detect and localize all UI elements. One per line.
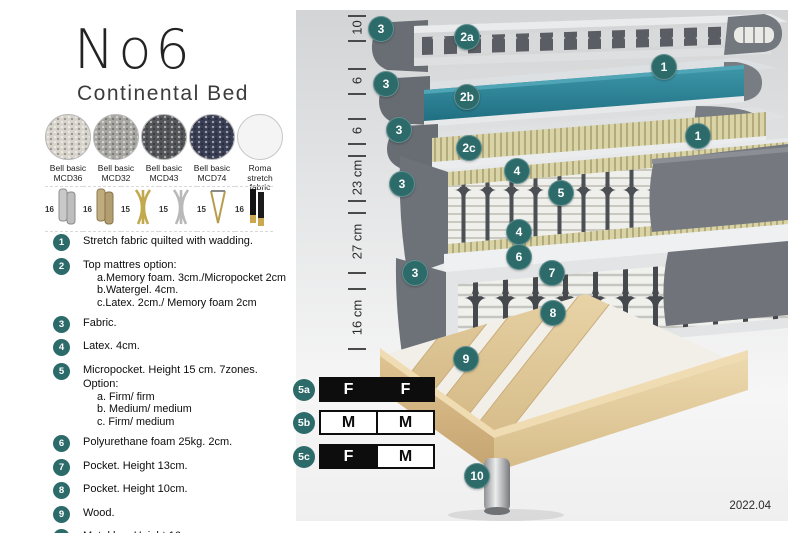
legend-text: Top mattres option:a.Memory foam. 3cm./M…	[83, 258, 286, 310]
leg-height-label: 16	[83, 205, 92, 214]
diagram-badge-2b: 2b	[454, 84, 480, 110]
fabric-swatch: Romastretch fabric	[237, 114, 283, 193]
diagram-badge-10: 10	[464, 463, 490, 489]
firmness-cell: M	[376, 412, 433, 433]
twist-gold-icon	[131, 187, 155, 232]
fabric-swatch-label: Bell basicMCD32	[93, 164, 139, 183]
legend-number-badge: 8	[53, 482, 70, 499]
legend-number-badge: 2	[53, 258, 70, 275]
legend-text-main: Pocket. Height 10cm.	[83, 482, 188, 496]
diagram-badge-1: 1	[651, 54, 677, 80]
fabric-swatch: Bell basicMCD32	[93, 114, 139, 193]
legend-number-badge: 5	[53, 363, 70, 380]
leg-options: 161615151516	[45, 186, 283, 232]
fabric-code: MCD74	[189, 174, 235, 184]
diagram-badge-3: 3	[389, 171, 415, 197]
dimension-value: 23 cm	[350, 146, 365, 208]
legend-text: Polyurethane foam 25kg. 2cm.	[83, 435, 232, 452]
firmness-row-5b: 5bMM	[293, 410, 435, 435]
legend-number-badge: 9	[53, 506, 70, 523]
legend-item: 9Wood.	[53, 506, 293, 523]
cylinder-silver-icon	[55, 187, 79, 232]
fabric-code: MCD32	[93, 174, 139, 184]
legend-number-badge: 10	[53, 529, 70, 533]
legend-text-main: Top mattres option:	[83, 258, 286, 272]
diagram-panel: 106623 cm27 cm16 cm 32a132b132c345463789…	[296, 10, 788, 521]
legend-text: Metal leg. Height 16cm.	[83, 529, 199, 533]
fabric-swatch-label: Bell basicMCD36	[45, 164, 91, 183]
leg-height-label: 16	[45, 205, 54, 214]
legend-text-main: Micropocket. Height 15 cm. 7zones. Optio…	[83, 363, 293, 391]
legend-text-sub: c.Latex. 2cm./ Memory foam 2cm	[97, 297, 286, 310]
legend-text: Stretch fabric quilted with wadding.	[83, 234, 253, 251]
legend-number-badge: 1	[53, 234, 70, 251]
leg-height-label: 16	[235, 205, 244, 214]
legend-text: Micropocket. Height 15 cm. 7zones. Optio…	[83, 363, 293, 429]
legend-text-main: Wood.	[83, 506, 115, 520]
leg-option: 15	[197, 186, 235, 232]
taper-black-gold-icon	[245, 187, 269, 232]
diagram-badge-3: 3	[373, 71, 399, 97]
fabric-code: MCD36	[45, 174, 91, 184]
leg-option: 16	[83, 186, 121, 232]
hairpin-gold-icon	[207, 187, 231, 232]
firmness-row-5a: 5aFF	[293, 377, 435, 402]
legend-item: 8Pocket. Height 10cm.	[53, 482, 293, 499]
fabric-swatch-circle	[237, 114, 283, 160]
fabric-swatch-circle	[189, 114, 235, 160]
legend-item: 6Polyurethane foam 25kg. 2cm.	[53, 435, 293, 452]
firmness-cell: F	[321, 379, 376, 400]
page-title: No6	[74, 18, 194, 81]
legend-item: 3Fabric.	[53, 316, 293, 333]
firmness-badge: 5c	[293, 446, 315, 468]
fabric-swatch-circle	[141, 114, 187, 160]
firmness-cells: FM	[319, 444, 435, 469]
legend-text: Latex. 4cm.	[83, 339, 140, 356]
legend-text-main: Latex. 4cm.	[83, 339, 140, 353]
diagram-badge-8: 8	[540, 300, 566, 326]
legend-text-sub: a. Firm/ firm	[97, 391, 293, 404]
legend-item: 10Metal leg. Height 16cm.	[53, 529, 293, 533]
fabric-swatch-label: Bell basicMCD43	[141, 164, 187, 183]
leg-height-label: 15	[159, 205, 168, 214]
leg-option: 15	[121, 186, 159, 232]
diagram-badge-1: 1	[685, 123, 711, 149]
twist-silver-icon	[169, 187, 193, 232]
firmness-badge: 5b	[293, 412, 315, 434]
legend-number-badge: 4	[53, 339, 70, 356]
diagram-badge-3: 3	[368, 16, 394, 42]
fabric-swatch-circle	[45, 114, 91, 160]
dimension-value: 27 cm	[350, 211, 365, 273]
legend-item: 1Stretch fabric quilted with wadding.	[53, 234, 293, 251]
fabric-swatch: Bell basicMCD36	[45, 114, 91, 193]
fabric-swatch-label: Bell basicMCD74	[189, 164, 235, 183]
firmness-row-5c: 5cFM	[293, 444, 435, 469]
diagram-badge-4: 4	[504, 158, 530, 184]
version-label: 2022.04	[729, 500, 771, 512]
fabric-code: MCD43	[141, 174, 187, 184]
diagram-badge-9: 9	[453, 346, 479, 372]
fabric-swatch-circle	[93, 114, 139, 160]
legend-text-sub: b. Medium/ medium	[97, 403, 293, 416]
leg-height-label: 15	[197, 205, 206, 214]
page-subtitle: Continental Bed	[77, 82, 249, 106]
legend-text-main: Fabric.	[83, 316, 117, 330]
legend-text: Fabric.	[83, 316, 117, 333]
legend-text: Wood.	[83, 506, 115, 523]
legend-number-badge: 3	[53, 316, 70, 333]
legend-number-badge: 6	[53, 435, 70, 452]
legend-item: 2Top mattres option:a.Memory foam. 3cm./…	[53, 258, 293, 310]
diagram-badge-7: 7	[539, 260, 565, 286]
legend-text: Pocket. Height 10cm.	[83, 482, 188, 499]
diagram-badge-4: 4	[506, 219, 532, 245]
firmness-cell: M	[376, 446, 433, 467]
firmness-cells: MM	[319, 410, 435, 435]
diagram-badge-5: 5	[548, 180, 574, 206]
cylinder-bronze-icon	[93, 187, 117, 232]
firmness-cell: M	[321, 412, 376, 433]
fabric-swatches: Bell basicMCD36Bell basicMCD32Bell basic…	[45, 114, 283, 193]
legend-item: 5Micropocket. Height 15 cm. 7zones. Opti…	[53, 363, 293, 429]
product-sheet: No6 Continental Bed Bell basicMCD36Bell …	[0, 0, 800, 533]
legend-text-main: Stretch fabric quilted with wadding.	[83, 234, 253, 248]
firmness-cell: F	[376, 379, 433, 400]
leg-height-label: 15	[121, 205, 130, 214]
legend-text-main: Metal leg. Height 16cm.	[83, 529, 199, 533]
legend-item: 4Latex. 4cm.	[53, 339, 293, 356]
leg-option: 15	[159, 186, 197, 232]
legend-text-sub: a.Memory foam. 3cm./Micropocket 2cm	[97, 272, 286, 285]
dimension-value: 16 cm	[350, 287, 365, 349]
diagram-badge-2a: 2a	[454, 24, 480, 50]
legend-item: 7Pocket. Height 13cm.	[53, 459, 293, 476]
legend-text-sub: b.Watergel. 4cm.	[97, 284, 286, 297]
legend-text-main: Pocket. Height 13cm.	[83, 459, 188, 473]
diagram-badge-3: 3	[402, 260, 428, 286]
legend-text: Pocket. Height 13cm.	[83, 459, 188, 476]
fabric-swatch: Bell basicMCD43	[141, 114, 187, 193]
diagram-badge-6: 6	[506, 244, 532, 270]
fabric-swatch: Bell basicMCD74	[189, 114, 235, 193]
firmness-cells: FF	[319, 377, 435, 402]
firmness-cell: F	[321, 446, 376, 467]
diagram-badge-2c: 2c	[456, 135, 482, 161]
firmness-badge: 5a	[293, 379, 315, 401]
leg-option: 16	[45, 186, 83, 232]
legend-text-sub: c. Firm/ medium	[97, 416, 293, 429]
legend-number-badge: 7	[53, 459, 70, 476]
legend-text-main: Polyurethane foam 25kg. 2cm.	[83, 435, 232, 449]
legend-list: 1Stretch fabric quilted with wadding.2To…	[53, 234, 293, 533]
leg-option: 16	[235, 186, 273, 232]
diagram-badge-3: 3	[386, 117, 412, 143]
